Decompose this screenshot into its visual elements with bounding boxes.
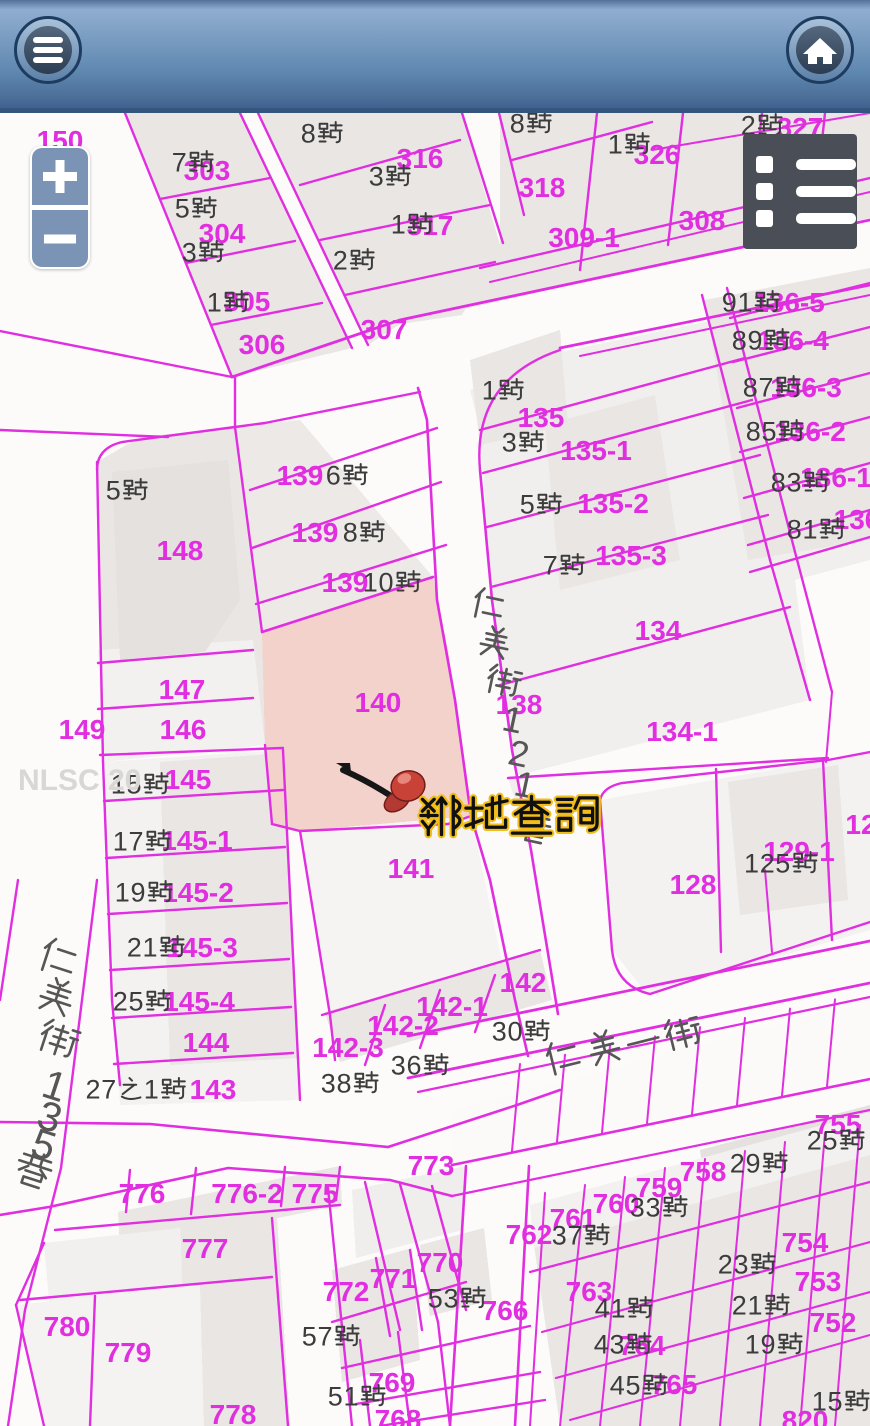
svg-text:2: 2: [718, 1250, 733, 1280]
svg-text:145-4: 145-4: [163, 986, 235, 1017]
svg-text:5: 5: [823, 1126, 838, 1156]
svg-text:2: 2: [127, 933, 142, 963]
svg-text:3: 3: [492, 1017, 507, 1047]
svg-text:778: 778: [210, 1399, 257, 1426]
svg-text:139: 139: [277, 460, 324, 491]
svg-text:773: 773: [408, 1150, 455, 1181]
svg-text:142: 142: [500, 967, 547, 998]
svg-text:1: 1: [744, 849, 759, 879]
svg-text:139: 139: [292, 517, 339, 548]
svg-text:772: 772: [323, 1276, 370, 1307]
svg-text:1: 1: [745, 1330, 760, 1360]
svg-text:144: 144: [183, 1027, 230, 1058]
svg-text:135-2: 135-2: [577, 488, 649, 519]
svg-text:135-1: 135-1: [560, 435, 632, 466]
svg-text:3: 3: [391, 1051, 406, 1081]
svg-text:5: 5: [175, 194, 190, 224]
svg-text:5: 5: [626, 1371, 641, 1401]
svg-text:766: 766: [482, 1295, 529, 1326]
svg-text:2: 2: [86, 1075, 101, 1105]
svg-text:2: 2: [333, 246, 348, 276]
svg-text:307: 307: [361, 314, 408, 345]
svg-text:7: 7: [172, 148, 187, 178]
svg-text:8: 8: [337, 1069, 352, 1099]
svg-text:780: 780: [44, 1311, 91, 1342]
svg-text:771: 771: [370, 1263, 417, 1294]
svg-text:754: 754: [782, 1227, 829, 1258]
svg-text:5: 5: [775, 849, 790, 879]
svg-text:NLSC 20: NLSC 20: [18, 764, 141, 797]
svg-text:1: 1: [144, 1075, 159, 1105]
svg-text:3: 3: [182, 238, 197, 268]
svg-text:1: 1: [482, 376, 497, 406]
svg-text:3: 3: [787, 468, 802, 498]
svg-text:8: 8: [743, 373, 758, 403]
svg-text:8: 8: [746, 417, 761, 447]
svg-text:143: 143: [190, 1074, 237, 1105]
svg-text:6: 6: [407, 1051, 422, 1081]
svg-text:8: 8: [771, 468, 786, 498]
svg-text:145-1: 145-1: [161, 825, 233, 856]
svg-text:5: 5: [520, 490, 535, 520]
svg-text:1: 1: [115, 878, 130, 908]
svg-text:1: 1: [803, 515, 818, 545]
svg-text:3: 3: [646, 1193, 661, 1223]
svg-text:135: 135: [518, 402, 565, 433]
svg-text:3: 3: [552, 1221, 567, 1251]
svg-text:146: 146: [160, 714, 207, 745]
svg-text:2: 2: [113, 987, 128, 1017]
svg-text:308: 308: [679, 205, 726, 236]
svg-text:135-3: 135-3: [595, 540, 667, 571]
svg-text:139: 139: [322, 567, 369, 598]
svg-text:5: 5: [828, 1387, 843, 1417]
svg-text:2: 2: [760, 849, 775, 879]
svg-text:752: 752: [810, 1307, 857, 1338]
svg-text:753: 753: [795, 1266, 842, 1297]
svg-text:145-2: 145-2: [162, 877, 234, 908]
svg-text:776-2: 776-2: [211, 1178, 283, 1209]
svg-text:1: 1: [738, 288, 753, 318]
svg-text:5: 5: [428, 1284, 443, 1314]
svg-text:1: 1: [143, 933, 158, 963]
svg-text:7: 7: [318, 1322, 333, 1352]
svg-text:2: 2: [730, 1149, 745, 1179]
svg-text:1: 1: [608, 130, 623, 160]
svg-text:1: 1: [611, 1294, 626, 1324]
svg-text:9: 9: [131, 878, 146, 908]
svg-text:147: 147: [159, 674, 206, 705]
svg-text:0: 0: [508, 1017, 523, 1047]
svg-text:8: 8: [732, 326, 747, 356]
svg-text:2: 2: [807, 1126, 822, 1156]
svg-text:777: 777: [182, 1233, 229, 1264]
svg-text:306: 306: [239, 329, 286, 360]
svg-text:776: 776: [119, 1178, 166, 1209]
svg-text:145: 145: [165, 764, 212, 795]
svg-text:326: 326: [634, 139, 681, 170]
svg-text:136: 136: [834, 504, 870, 535]
svg-text:1: 1: [812, 1387, 827, 1417]
svg-text:7: 7: [129, 827, 144, 857]
svg-text:7: 7: [759, 373, 774, 403]
svg-text:8: 8: [301, 119, 316, 149]
svg-text:149: 149: [59, 714, 106, 745]
svg-text:3: 3: [321, 1069, 336, 1099]
svg-text:5: 5: [762, 417, 777, 447]
svg-text:9: 9: [746, 1149, 761, 1179]
svg-text:8: 8: [787, 515, 802, 545]
svg-text:3: 3: [444, 1284, 459, 1314]
svg-text:134-1: 134-1: [646, 716, 718, 747]
svg-text:5: 5: [328, 1382, 343, 1412]
svg-text:148: 148: [157, 535, 204, 566]
svg-text:1: 1: [748, 1291, 763, 1321]
svg-text:7: 7: [101, 1075, 116, 1105]
svg-text:1: 1: [207, 288, 222, 318]
svg-text:7: 7: [543, 551, 558, 581]
svg-text:9: 9: [722, 288, 737, 318]
svg-text:3: 3: [734, 1250, 749, 1280]
svg-text:3: 3: [369, 162, 384, 192]
svg-text:5: 5: [129, 987, 144, 1017]
svg-text:779: 779: [105, 1337, 152, 1368]
svg-text:1: 1: [363, 568, 378, 598]
svg-text:9: 9: [748, 326, 763, 356]
svg-text:6: 6: [326, 461, 341, 491]
svg-text:2: 2: [732, 1291, 747, 1321]
svg-text:141: 141: [388, 853, 435, 884]
svg-text:758: 758: [680, 1156, 727, 1187]
svg-text:768: 768: [375, 1404, 422, 1426]
svg-text:1: 1: [113, 827, 128, 857]
svg-text:762: 762: [506, 1219, 553, 1250]
svg-text:5: 5: [302, 1322, 317, 1352]
svg-text:1: 1: [344, 1382, 359, 1412]
svg-text:8: 8: [343, 518, 358, 548]
svg-text:309-1: 309-1: [548, 222, 620, 253]
svg-text:9: 9: [761, 1330, 776, 1360]
svg-text:3: 3: [610, 1330, 625, 1360]
svg-text:7: 7: [568, 1221, 583, 1251]
svg-text:5: 5: [106, 476, 121, 506]
svg-text:318: 318: [519, 172, 566, 203]
svg-text:775: 775: [292, 1178, 339, 1209]
svg-text:8: 8: [510, 109, 525, 139]
svg-text:765: 765: [651, 1369, 698, 1400]
svg-text:12: 12: [845, 809, 870, 840]
svg-text:0: 0: [379, 568, 394, 598]
svg-text:4: 4: [594, 1330, 609, 1360]
svg-text:140: 140: [355, 687, 402, 718]
svg-text:4: 4: [610, 1371, 625, 1401]
svg-text:128: 128: [670, 869, 717, 900]
svg-text:1: 1: [391, 210, 406, 240]
svg-text:3: 3: [630, 1193, 645, 1223]
svg-text:134: 134: [635, 615, 682, 646]
svg-text:770: 770: [417, 1247, 464, 1278]
svg-text:3: 3: [502, 428, 517, 458]
svg-text:4: 4: [595, 1294, 610, 1324]
svg-text:764: 764: [619, 1330, 666, 1361]
svg-text:142-3: 142-3: [312, 1032, 384, 1063]
